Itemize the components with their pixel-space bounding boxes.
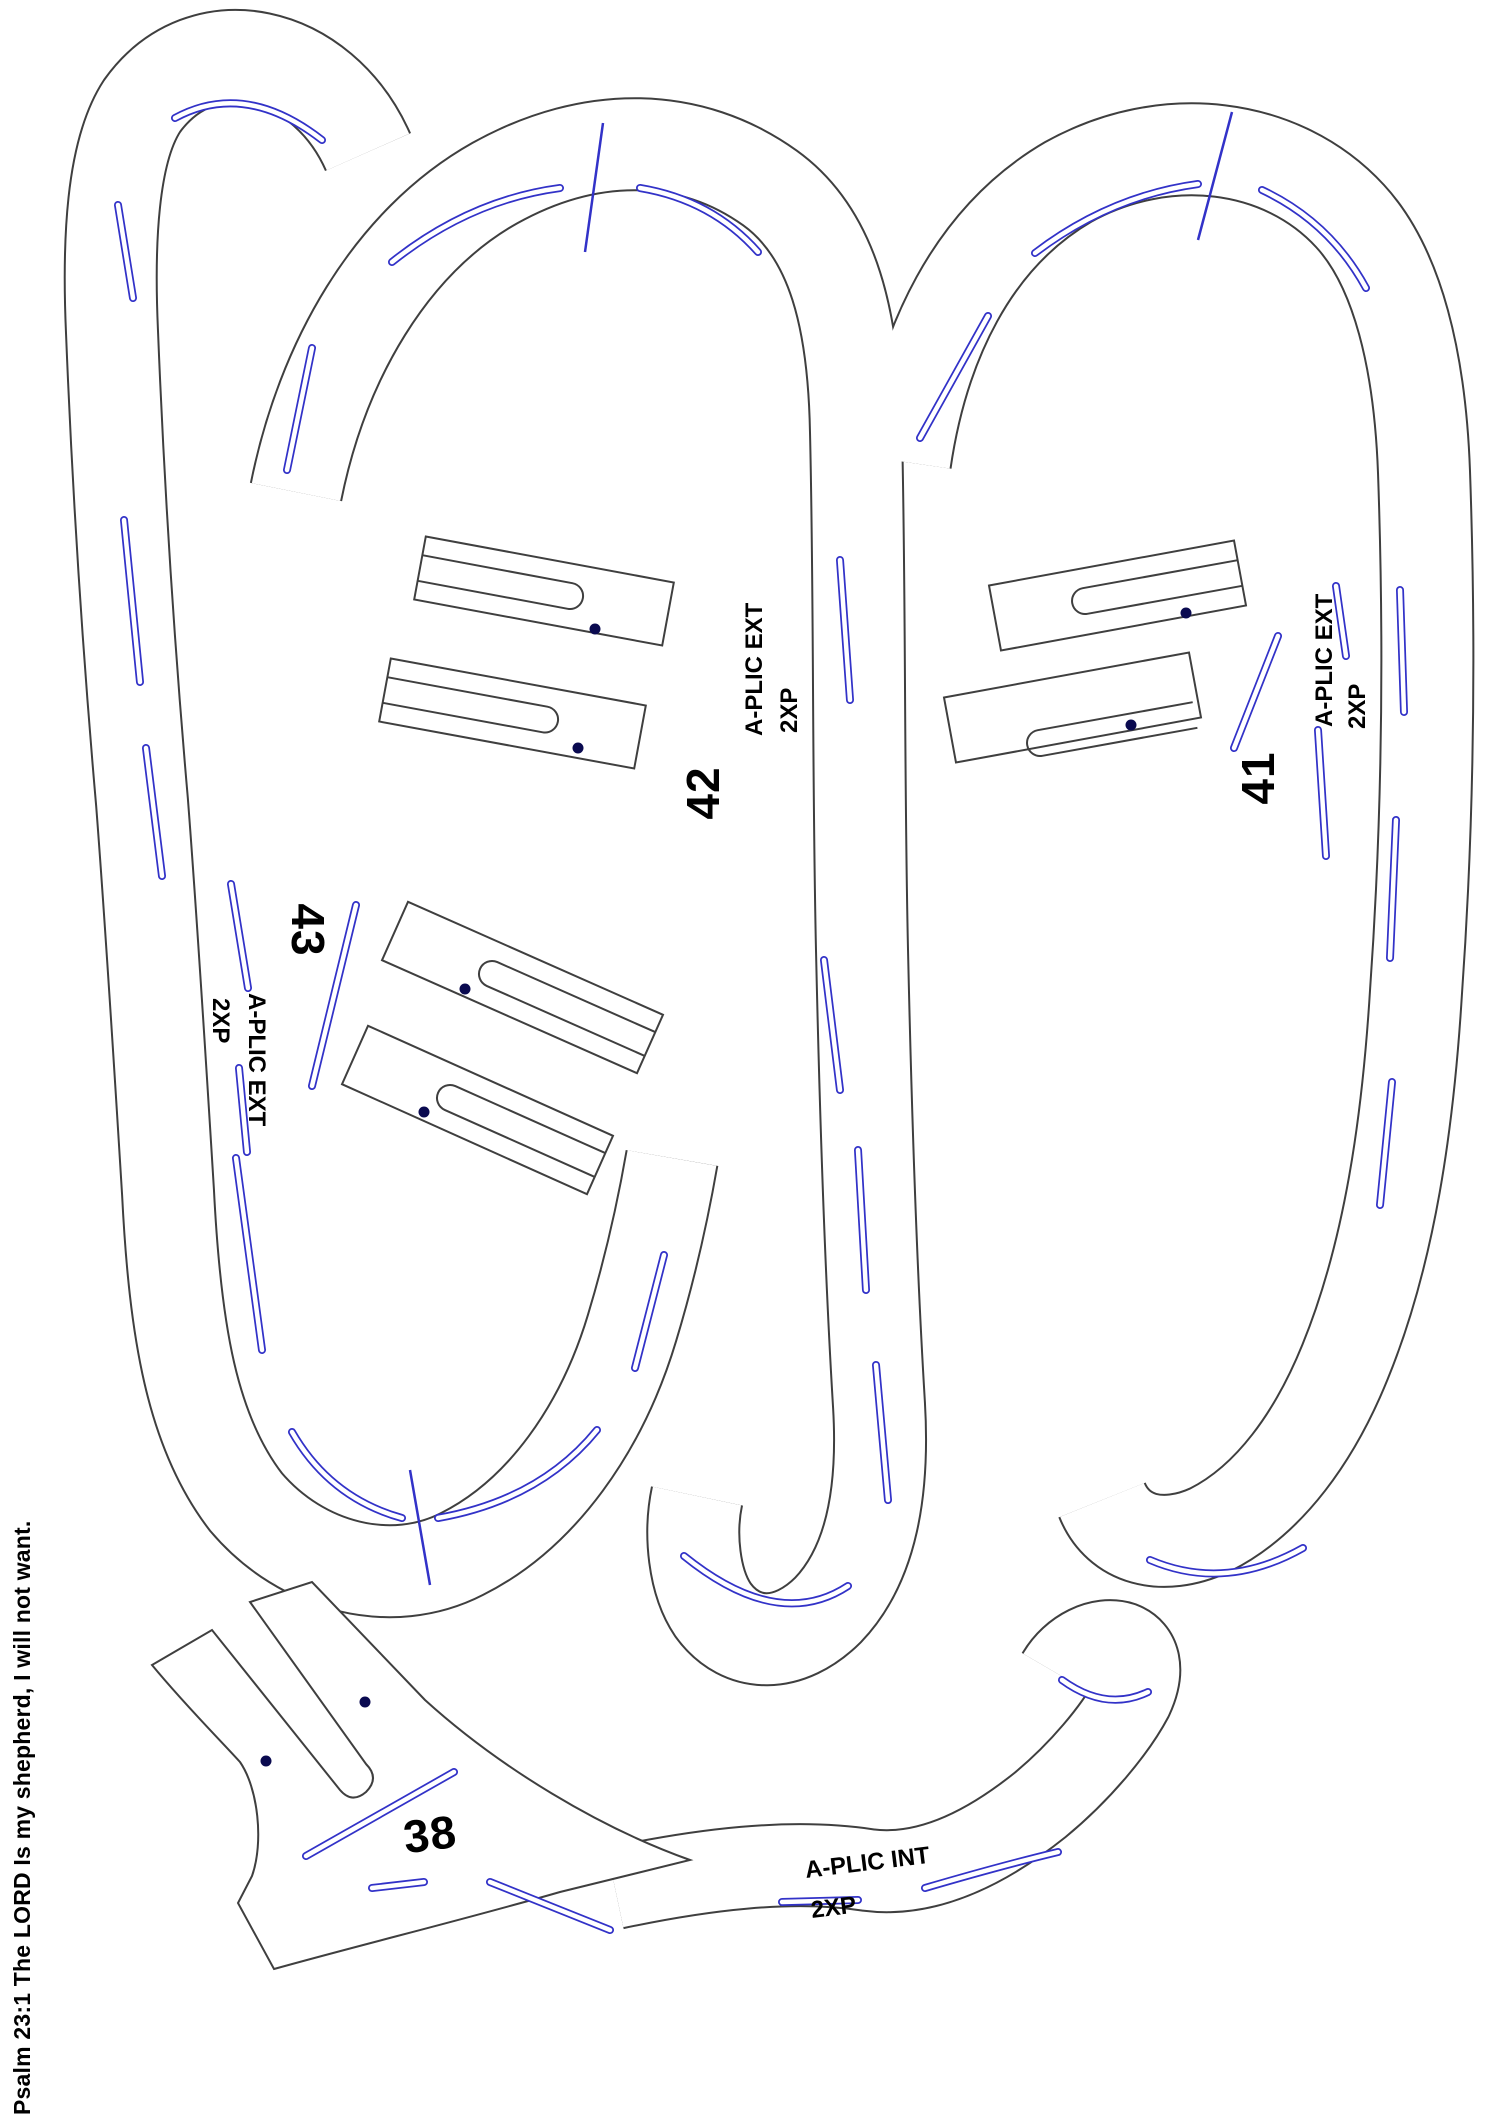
piece-38-body bbox=[152, 1582, 690, 1969]
piece-38-quantity-label: 2XP bbox=[809, 1892, 857, 1924]
slot-piece bbox=[342, 1026, 613, 1194]
slot-piece bbox=[414, 537, 674, 646]
piece-42-quantity-label: 2XP bbox=[776, 688, 803, 733]
slot-piece bbox=[382, 902, 663, 1073]
pin-hole-dot bbox=[460, 984, 471, 995]
piece-43-quantity-label: 2XP bbox=[207, 998, 234, 1043]
slot-piece bbox=[379, 659, 646, 769]
piece-number-38: 38 bbox=[400, 1805, 459, 1863]
piece-43-type-label: A-PLIC EXT bbox=[243, 993, 270, 1127]
slot-piece bbox=[989, 541, 1246, 651]
nested-slot-pieces bbox=[342, 537, 1246, 1195]
piece-41-quantity-label: 2XP bbox=[1344, 684, 1371, 729]
pin-hole-dot bbox=[573, 743, 584, 754]
piece-41-type-label: A-PLIC EXT bbox=[1311, 593, 1338, 727]
pattern-line bbox=[905, 149, 1427, 1541]
pin-hole-dot bbox=[360, 1697, 371, 1708]
pattern-sheet-canvas: 43 A-PLIC EXT 2XP 42 A-PLIC EXT 2XP 41 A… bbox=[0, 0, 1500, 2121]
pattern-line bbox=[236, 1158, 262, 1350]
piece-42-type-label: A-PLIC EXT bbox=[741, 602, 768, 736]
pattern-line bbox=[231, 884, 248, 988]
pin-hole-dot bbox=[590, 624, 601, 635]
pin-hole-dot bbox=[261, 1756, 272, 1767]
piece-number-42: 42 bbox=[677, 766, 729, 819]
pattern-sheet: 43 A-PLIC EXT 2XP 42 A-PLIC EXT 2XP 41 A… bbox=[0, 0, 1500, 2121]
piece-number-43: 43 bbox=[282, 903, 334, 956]
pin-hole-dot bbox=[419, 1107, 430, 1118]
pattern-line bbox=[1234, 636, 1278, 748]
pin-hole-dot bbox=[1126, 720, 1137, 731]
piece-number-41: 41 bbox=[1232, 751, 1284, 804]
verse-footer-text: Psalm 23:1 The LORD Is my shepherd, I wi… bbox=[9, 1521, 35, 2115]
pin-hole-dot bbox=[1181, 608, 1192, 619]
